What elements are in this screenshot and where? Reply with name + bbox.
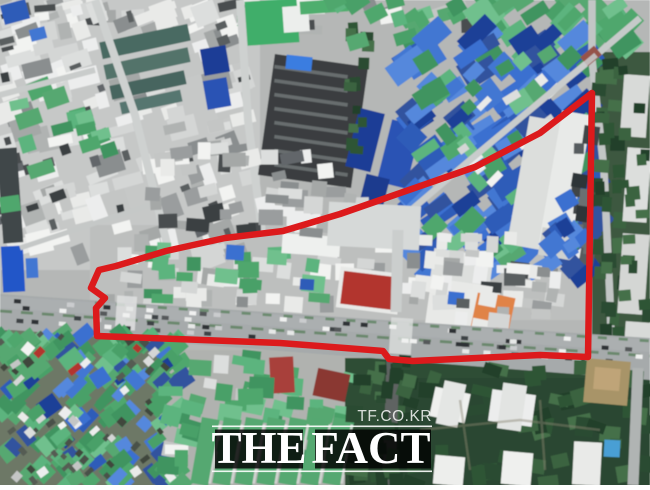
svg-text:FACT: FACT xyxy=(311,423,430,473)
svg-text:THE: THE xyxy=(211,423,306,473)
